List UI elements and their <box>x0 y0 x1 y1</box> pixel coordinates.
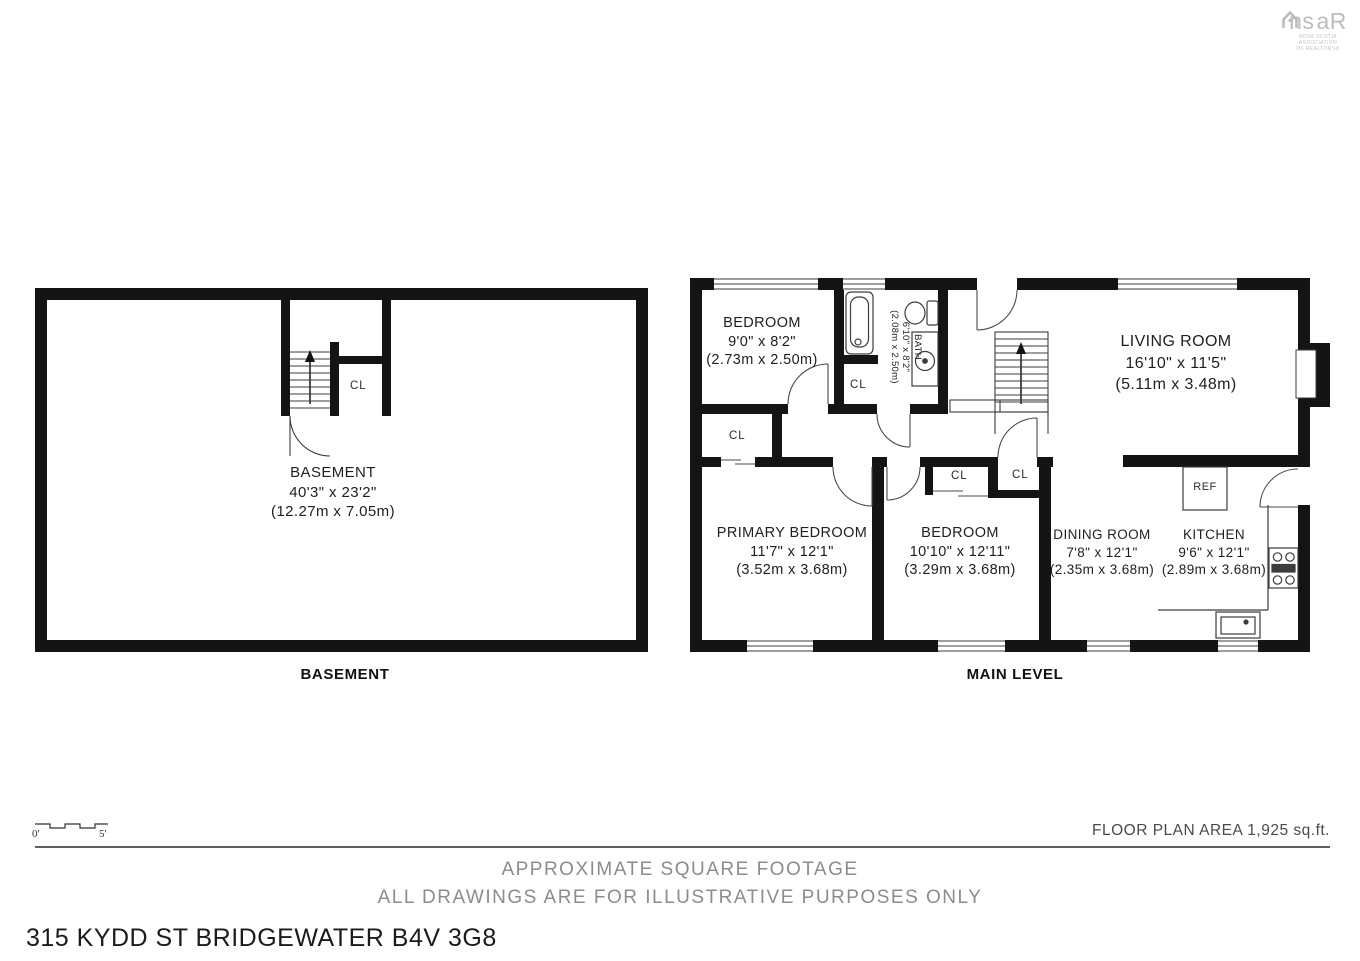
caption-main-level: MAIN LEVEL <box>915 666 1115 683</box>
room-label-living: LIVING ROOM 16'10" x 11'5" (5.11m x 3.48… <box>1066 331 1286 396</box>
closet-label-basement: CL <box>350 380 367 392</box>
floorplan-linework <box>0 0 1360 961</box>
nsar-logo: ns aR NOVA SCOTIA ASSOCIATION OF REALTOR… <box>1281 10 1355 52</box>
closet-label-hall: CL <box>729 430 746 442</box>
scale-zero-label: 0' <box>32 828 39 840</box>
room-label-basement: BASEMENT 40'3" x 23'2" (12.27m x 7.05m) <box>213 463 453 522</box>
caption-basement: BASEMENT <box>245 666 445 683</box>
illustrative-note: ALL DRAWINGS ARE FOR ILLUSTRATIVE PURPOS… <box>0 887 1360 909</box>
floor-plan-area-text: FLOOR PLAN AREA 1,925 sq.ft. <box>1030 822 1330 840</box>
refrigerator-label: REF <box>1183 481 1227 493</box>
property-address: 315 KYDD ST BRIDGEWATER B4V 3G8 <box>26 924 497 953</box>
approx-footage-note: APPROXIMATE SQUARE FOOTAGE <box>0 859 1360 881</box>
room-label-bedroom-top: BEDROOM 9'0" x 8'2" (2.73m x 2.50m) <box>662 314 862 370</box>
closet-label-bath: CL <box>850 379 867 391</box>
logo-text-right: aR <box>1316 10 1346 32</box>
basement-stairs <box>290 352 330 456</box>
scale-bar <box>35 824 108 828</box>
room-label-bath: BATH 6'10" x 8'2" (2.08m x 2.50m) <box>867 292 923 402</box>
logo-subtitle-2: OF REALTORS® <box>1281 46 1355 52</box>
room-label-kitchen: KITCHEN 9'6" x 12'1" (2.89m x 3.68m) <box>1144 526 1284 579</box>
logo-subtitle-1: NOVA SCOTIA ASSOCIATION <box>1281 34 1355 46</box>
room-label-primary-bedroom: PRIMARY BEDROOM 11'7" x 12'1" (3.52m x 3… <box>692 524 892 580</box>
room-label-bedroom2: BEDROOM 10'10" x 12'11" (3.29m x 3.68m) <box>870 524 1050 580</box>
closet-label-dining: CL <box>1012 469 1029 481</box>
main-stair-arrow <box>1016 342 1026 354</box>
scale-five-label: 5' <box>99 828 106 840</box>
floorplan-page: BEDROOM 9'0" x 8'2" (2.73m x 2.50m) BATH… <box>0 0 1360 961</box>
kitchen-sink <box>1216 612 1260 638</box>
closet-label-bedroom: CL <box>951 470 968 482</box>
